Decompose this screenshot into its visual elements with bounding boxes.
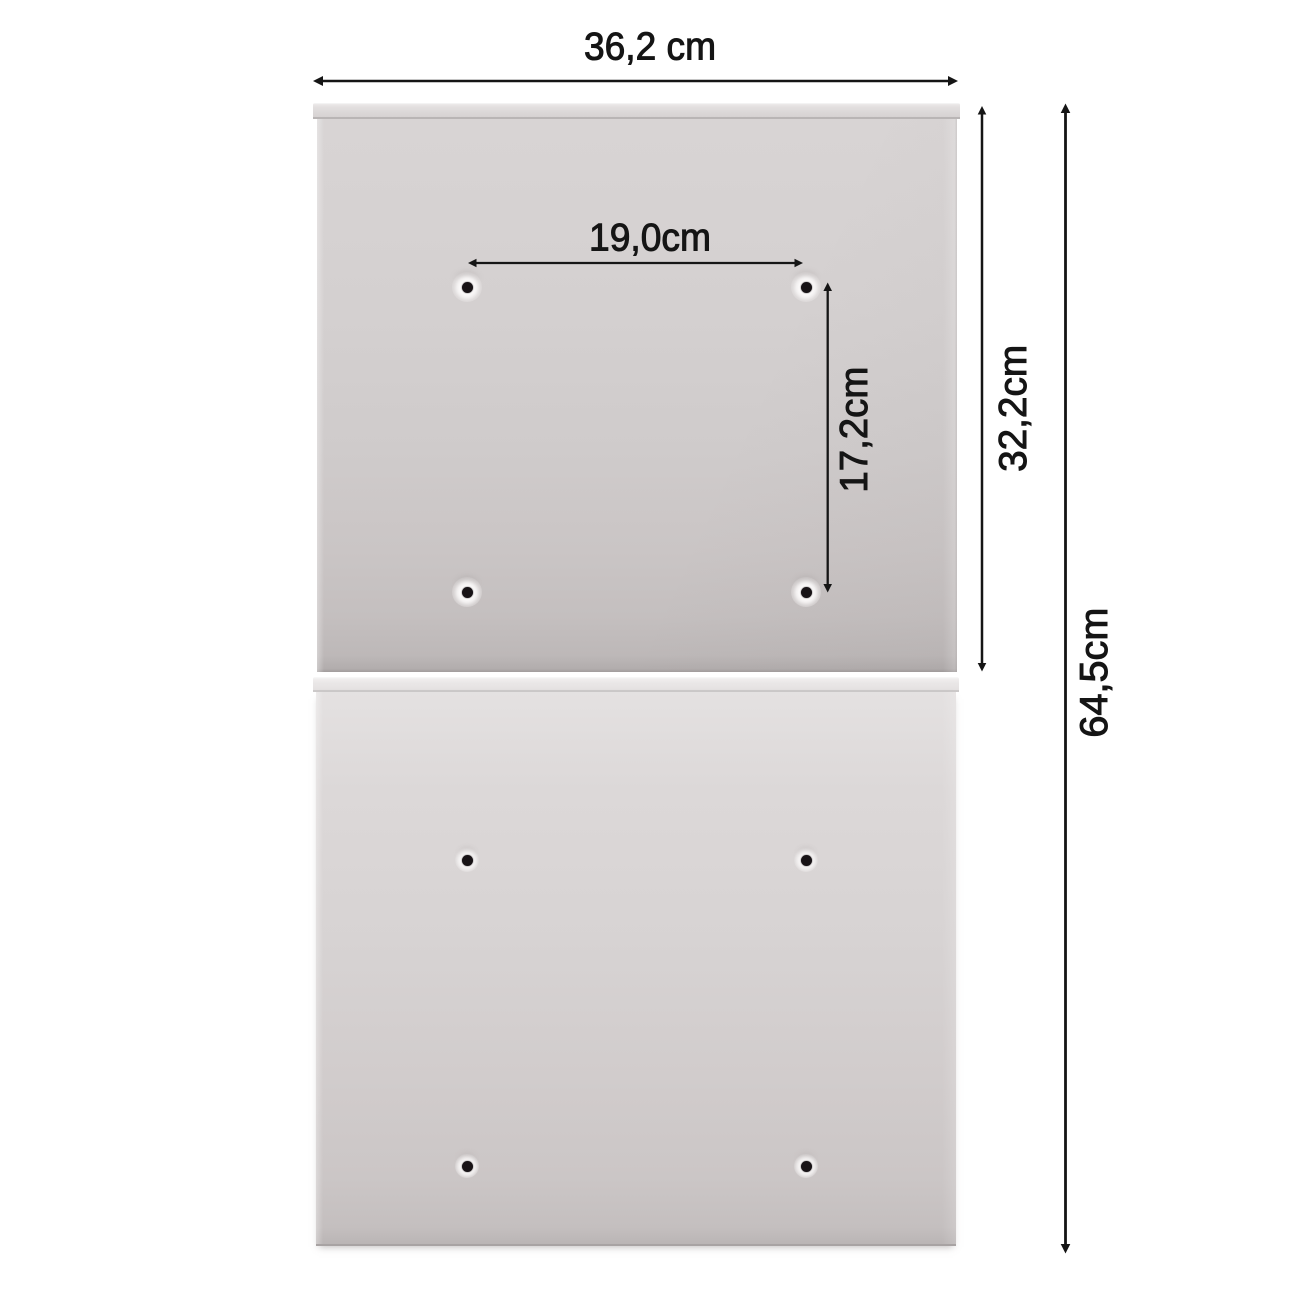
svg-text:17,2cm: 17,2cm bbox=[833, 367, 876, 493]
svg-text:64,5cm: 64,5cm bbox=[1073, 608, 1116, 738]
svg-text:32,2cm: 32,2cm bbox=[992, 345, 1035, 472]
svg-text:36,2 cm: 36,2 cm bbox=[584, 26, 716, 69]
svg-text:19,0cm: 19,0cm bbox=[589, 217, 711, 260]
